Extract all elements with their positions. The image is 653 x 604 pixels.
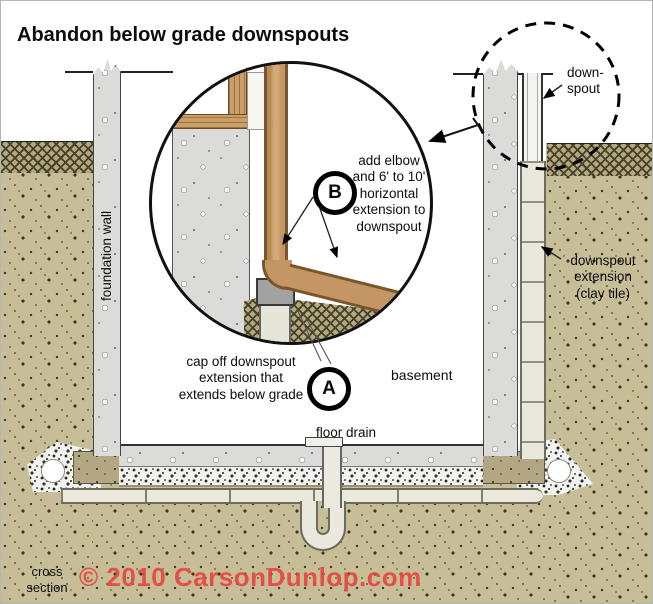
clay-tile-extension-pipe — [520, 161, 546, 459]
label-foundation-wall: foundation wall — [99, 181, 115, 331]
detail-foundation-wall — [172, 128, 250, 345]
label-floor-drain: floor drain — [301, 425, 391, 441]
page-title: Abandon below grade downspouts — [17, 23, 349, 47]
under-slab-gravel — [119, 467, 483, 487]
zoom-callout-arrow-tail — [473, 118, 483, 132]
zoom-callout-arrow — [430, 125, 478, 141]
wall-break-line — [121, 71, 173, 73]
callout-b-text: add elbow and 6' to 10' horizontal exten… — [341, 153, 437, 235]
basement-floor-slab — [119, 444, 483, 467]
perimeter-drain-tile-left — [41, 459, 65, 483]
downspout-pipe — [522, 73, 543, 163]
copyright-link[interactable]: © 2010 CarsonDunlop.com — [79, 562, 422, 594]
grade-topsoil-right — [547, 143, 653, 176]
soil-left — [1, 141, 93, 604]
label-basement: basement — [391, 367, 452, 384]
grade-topsoil-left — [1, 141, 93, 173]
label-downspout-extension: downspout extension (clay tile) — [553, 253, 653, 302]
label-downspout: down- spout — [567, 65, 631, 98]
detail-old-below-grade-extension — [259, 306, 291, 345]
wall-break-line — [65, 71, 93, 73]
callout-a-text: cap off downspout extension that extends… — [171, 354, 311, 403]
diagram-canvas: Abandon below grade downspouts down- spo… — [0, 0, 653, 604]
floor-drain-pipe — [322, 444, 342, 508]
downspout-leader-arrow — [544, 85, 562, 98]
label-cross-section: cross section — [15, 564, 79, 596]
callout-a-letter: A — [322, 378, 336, 400]
perimeter-drain-tile-right — [547, 459, 571, 483]
detail-downspout — [264, 64, 288, 264]
soil-right — [546, 143, 653, 604]
callout-a-badge: A — [307, 367, 351, 411]
foundation-wall-right — [483, 59, 518, 456]
wall-break-line — [453, 73, 483, 75]
detail-wall-stud — [228, 64, 247, 115]
callout-b-letter: B — [328, 182, 342, 204]
